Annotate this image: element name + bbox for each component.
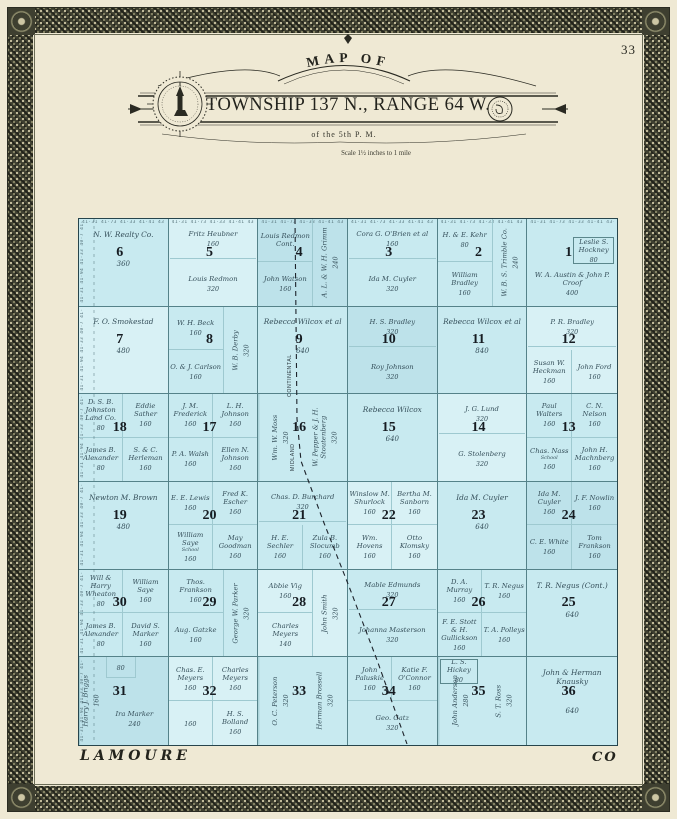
parcel-acres: 320 — [242, 607, 250, 619]
section-cell: Winslow M. Shurlock160Bertha M. Sanborn1… — [348, 482, 438, 570]
parcel-owner: Newton M. Brown — [89, 493, 157, 502]
section-cell: T. R. Negus (Cont.)64025 — [527, 570, 617, 658]
parcel-acres: 160 — [543, 377, 555, 385]
parcel-acres: 160 — [93, 695, 101, 707]
parcel: O. & J. Carlson160 — [169, 350, 224, 393]
section-cell: 41·31 41·94 41·33 40·7 41·7Will & Harry … — [79, 570, 169, 658]
parcel: John Watson160 — [258, 262, 313, 305]
parcel: Charles Meyers140 — [258, 613, 313, 656]
parcel-owner: Charles Meyers — [259, 622, 311, 638]
parcel-acres: 160 — [588, 552, 600, 560]
parcel: Louis Redmon Cont. — [258, 219, 313, 262]
parcel-acres: 160 — [139, 640, 151, 648]
parcel-acres: 160 — [229, 464, 241, 472]
parcel-owner: Otto Klomsky — [393, 534, 435, 550]
parcel-owner: W. B. S. Trimble Co. — [500, 228, 508, 297]
section-cell: P. R. Bradley320Susan W. Heckman160John … — [527, 307, 617, 395]
parcel-acres: 640 — [565, 611, 578, 619]
parcel: P. A. Walsh160 — [169, 438, 213, 481]
parcel: Rebecca Wilcox et al840 — [439, 308, 526, 393]
parcel: John Smith320 — [313, 570, 347, 657]
section-number: 31 — [113, 684, 127, 700]
section-number: 23 — [471, 508, 485, 524]
meridian-note: of the 5th P. M. — [206, 130, 482, 139]
section-number: 7 — [116, 332, 123, 348]
section-cell: 41·31 41·94 41·33 40·7 41·7F. O. Smokest… — [79, 307, 169, 395]
border-rosette — [8, 784, 35, 811]
parcel-owner: A. L. & W. H. Grimm — [321, 227, 329, 297]
parcel-acres: 160 — [279, 592, 291, 600]
parcel-owner: Wm. W. Moss — [271, 415, 279, 461]
section-cell: Wm. W. Moss320W. Pepper & J. H. Stoutenb… — [258, 394, 348, 482]
parcel: T. R. Negus160 — [482, 570, 526, 613]
parcel-owner: Chas. D. Burchard — [271, 493, 334, 501]
parcel-acres: 160 — [274, 552, 286, 560]
parcel-acres: 320 — [386, 373, 398, 381]
parcel-owner: Katie F. O'Connor — [393, 666, 435, 682]
section-cell: D. A. Murray160T. R. Negus160F. E. Stott… — [438, 570, 528, 658]
parcel: William Saye160 — [123, 570, 167, 613]
parcel-owner: Ida M. Cuyler — [369, 275, 416, 283]
parcel-owner: Rebecca Wilcox et al — [443, 317, 521, 326]
parcel-owner: Thos. Frankson — [170, 578, 222, 594]
parcel: Ellen N. Johnson160 — [213, 438, 257, 481]
section-number: 15 — [382, 420, 396, 436]
parcel-owner: D. A. Murray — [439, 578, 480, 594]
parcel-owner: W. Pepper & J. H. Stoutenberg — [311, 395, 327, 480]
section-number: 3 — [385, 245, 392, 261]
parcel-owner: W. B. Derby — [231, 330, 239, 370]
section-cell: W. H. Beck160O. & J. Carlson160W. B. Der… — [169, 307, 259, 395]
parcel: David S. Marker160 — [123, 613, 167, 656]
parcel-owner: Roy Johnson — [371, 363, 414, 371]
parcel-owner: S. T. Ross — [495, 685, 503, 718]
section-number: 29 — [202, 595, 216, 611]
section-number: 22 — [382, 508, 396, 524]
section-cell: 41·31 41·73 41·33 41·41 43·00 40·97 40·3… — [79, 219, 169, 307]
parcel-owner: E. E. Lewis — [171, 494, 210, 502]
parcel-owner: Zula B. Slocumb — [304, 534, 346, 550]
parcel-acres: 320 — [386, 636, 398, 644]
section-number: 11 — [472, 332, 485, 348]
section-cell: Chas. D. Burchard320H. E. Sechler160Zula… — [258, 482, 348, 570]
parcel-owner: C. N. Nelson — [573, 402, 616, 418]
parcel-owner: David S. Marker — [124, 622, 166, 638]
parcel-acres: 140 — [279, 640, 291, 648]
parcel-owner: H. S. Bradley — [369, 318, 415, 326]
parcel-acres: 160 — [588, 420, 600, 428]
parcel-owner: Harry J. Briggs — [82, 675, 90, 727]
parcel-acres: 320 — [326, 695, 334, 707]
parcel-owner: G. Stolenberg — [458, 450, 506, 458]
section-cell: Paul Walters160C. N. Nelson160Chas. Nass… — [527, 394, 617, 482]
section-number: 26 — [471, 595, 485, 611]
parcel-acres: 160 — [139, 596, 151, 604]
parcel-owner: John Anderson — [451, 676, 459, 727]
parcel: S. & C. Herleman160 — [123, 438, 167, 481]
parcel-owner: Rebecca Wilcox — [363, 405, 422, 414]
parcel: W. Pepper & J. H. Stoutenberg320 — [303, 394, 347, 481]
section-cell: H. S. Bradley320Roy Johnson32010 — [348, 307, 438, 395]
parcel-acres: 320 — [506, 695, 514, 707]
map-title-block: MAP OF TOWNSHIP 137 N., RANGE 64 W. of t… — [128, 34, 568, 164]
parcel-acres: 160 — [139, 420, 151, 428]
parcel-acres: 640 — [386, 435, 399, 443]
parcel-acres: 640 — [565, 707, 578, 715]
parcel-acres: 160 — [364, 684, 376, 692]
parcel-acres: 160 — [408, 684, 420, 692]
section-cell: Chas. E. Meyers160Charles Meyers160160H.… — [169, 657, 259, 745]
section-number: 25 — [562, 595, 576, 611]
parcel: G. Stolenberg320 — [439, 438, 526, 480]
parcel-owner: Johanna Masterson — [359, 626, 426, 634]
section-number: 9 — [296, 332, 303, 348]
section-number: 5 — [206, 245, 213, 261]
parcel-owner: James B. Alexander — [80, 446, 121, 462]
parcel-acres: 320 — [242, 344, 250, 356]
parcel-owner: John Paluskie — [349, 666, 390, 682]
parcel-owner: Charles Meyers — [214, 666, 256, 682]
county-label-co: CO — [592, 750, 618, 765]
emblem-vignette-icon — [147, 71, 213, 137]
parcel: W. A. Austin & John P. Croof400 — [528, 263, 616, 305]
parcel-owner: J. G. Lund — [465, 405, 499, 413]
parcel: Eddie Sather160 — [123, 394, 167, 437]
parcel: Fritz Heubner160 — [170, 220, 257, 259]
section-number: 33 — [292, 684, 306, 700]
parcel-acres: 160 — [319, 552, 331, 560]
parcel-acres: 160 — [459, 289, 471, 297]
parcel: Ira Marker240 — [102, 694, 167, 743]
parcel-owner: J. F. Nowlin — [575, 494, 614, 502]
parcel-acres: 240 — [332, 256, 340, 268]
parcel-owner: John Ford — [578, 363, 612, 371]
parcel-owner: Leslie S. Hockney — [575, 238, 612, 254]
section-cell: Rebecca Wilcox64015 — [348, 394, 438, 482]
section-number: 8 — [206, 332, 213, 348]
parcel-acres: 160 — [229, 684, 241, 692]
section-number: 18 — [113, 420, 127, 436]
section-number: 36 — [562, 684, 576, 700]
parcel-owner: T. A. Polleys — [484, 626, 525, 634]
parcel-owner: George W. Parker — [231, 583, 239, 643]
parcel-owner: May Goodman — [214, 534, 256, 550]
parcel: Tom Frankson160 — [572, 525, 617, 568]
parcel: C. E. White160 — [527, 525, 572, 568]
parcel-acres: 240 — [128, 720, 140, 728]
parcel: May Goodman160 — [213, 525, 257, 568]
section-number: 19 — [113, 508, 127, 524]
parcel: N. W. Realty Co.360 — [80, 220, 167, 305]
scale-note: Scale 1½ inches to 1 mile — [238, 150, 514, 157]
parcel-acres: 160 — [190, 596, 202, 604]
parcel: James B. Alexander80 — [79, 613, 123, 656]
decorative-border-bottom — [8, 786, 669, 811]
parcel-acres: 80 — [97, 464, 105, 472]
parcel: C. N. Nelson160 — [572, 394, 617, 437]
parcel-owner: F. O. Smokestad — [93, 317, 153, 326]
county-label-lamoure: LAMOURE — [80, 748, 191, 764]
section-number: 14 — [471, 420, 485, 436]
parcel-acres: 480 — [117, 347, 130, 355]
parcel: Wm. W. Moss320 — [258, 394, 302, 481]
parcel-owner: L. H. Johnson — [214, 402, 256, 418]
survey-lot-numbers: 41·31 41·73 41·33 41·41 43·00 40·97 40·3… — [530, 220, 614, 225]
section-number: 20 — [202, 508, 216, 524]
parcel: Otto Klomsky160 — [392, 525, 436, 568]
parcel-owner: Paul Walters — [528, 402, 570, 418]
parcel: John Anderson280 — [438, 657, 482, 745]
decorative-border-top — [8, 8, 669, 33]
section-cell: Rebecca Wilcox et al6409 — [258, 307, 348, 395]
banner-end-ornament-icon — [488, 97, 512, 121]
parcel-acres: 240 — [511, 256, 519, 268]
section-cell: 41·31 41·94 41·33 40·7 41·7Newton M. Bro… — [79, 482, 169, 570]
parcel: 160 — [169, 701, 213, 745]
section-cell: John Paluskie160Katie F. O'Connor160Geo.… — [348, 657, 438, 745]
parcel: George W. Parker320 — [224, 570, 258, 657]
border-rosette — [642, 784, 669, 811]
section-number: 2 — [475, 245, 482, 261]
parcel: Bertha M. Sanborn160 — [392, 482, 436, 525]
parcel-owner: Wm. Hovens — [349, 534, 390, 550]
parcel-acres: 80 — [117, 664, 125, 672]
parcel-owner: W. H. Beck — [177, 319, 214, 327]
parcel-owner: Tom Frankson — [573, 534, 616, 550]
parcel-owner: W. A. Austin & John P. Croof — [529, 271, 615, 287]
section-number: 17 — [202, 420, 216, 436]
section-cell: 41·31 41·73 41·33 41·41 43·00 40·97 40·3… — [258, 219, 348, 307]
parcel-acres: 160 — [139, 464, 151, 472]
parcel-owner: Aug. Gatzke — [175, 626, 217, 634]
section-cell: Abbie Vig160Charles Meyers140John Smith3… — [258, 570, 348, 658]
parcel-owner: P. A. Walsh — [172, 450, 209, 458]
parcel-owner: John Smith — [321, 594, 329, 632]
parcel-acres: 160 — [543, 508, 555, 516]
parcel: J. F. Nowlin160 — [572, 482, 617, 525]
parcel: O. C. Peterson320 — [258, 657, 302, 745]
parcel: W. B. Derby320 — [224, 307, 258, 394]
section-cell: O. C. Peterson320Herman Brossell32033 — [258, 657, 348, 745]
parcel: Wm. Hovens160 — [348, 525, 392, 568]
decorative-border-left — [8, 8, 33, 811]
parcel-acres: 160 — [229, 552, 241, 560]
parcel: 80 — [106, 657, 136, 678]
parcel-owner: Fred K. Escher — [214, 490, 256, 506]
parcel-acres: 80 — [97, 640, 105, 648]
parcel-acres: 160 — [498, 592, 510, 600]
parcel-acres: 160 — [190, 636, 202, 644]
parcel-owner: John Watson — [264, 275, 307, 283]
section-cell: 41·31 41·73 41·33 41·41 43·00 40·97 40·3… — [527, 219, 617, 307]
parcel-owner: O. & J. Carlson — [170, 363, 221, 371]
section-number: 1 — [565, 245, 572, 261]
section-cell: E. E. Lewis160Fred K. Escher160William S… — [169, 482, 259, 570]
section-cell: John & Herman Knausky64036 — [527, 657, 617, 745]
parcel-acres: 160 — [184, 684, 196, 692]
parcel-owner: Fritz Heubner — [189, 230, 238, 238]
parcel-acres: 160 — [184, 460, 196, 468]
parcel: Susan W. Heckman160 — [527, 350, 572, 393]
parcel-owner: Will & Harry Wheaton — [80, 574, 121, 598]
section-number: 13 — [562, 420, 576, 436]
parcel-owner: H. S. Bolland — [214, 710, 256, 726]
border-rosette — [8, 8, 35, 35]
parcel-acres: 640 — [296, 347, 309, 355]
parcel-acres: 160 — [543, 548, 555, 556]
parcel-acres: 160 — [453, 596, 465, 604]
section-number: 4 — [296, 245, 303, 261]
parcel-owner: T. R. Negus — [484, 582, 523, 590]
parcel-owner: N. W. Realty Co. — [93, 230, 153, 239]
parcel-owner: Ida M. Cuyler — [456, 493, 508, 502]
parcel: T. A. Polleys160 — [482, 613, 526, 656]
parcel-acres: 160 — [229, 508, 241, 516]
section-number: 34 — [382, 684, 396, 700]
parcel: Ida M. Cuyler320 — [349, 263, 436, 305]
map-title: TOWNSHIP 137 N., RANGE 64 W. — [206, 95, 482, 116]
section-cell: Thos. Frankson160Aug. Gatzke160George W.… — [169, 570, 259, 658]
parcel: William SayeSchool160 — [169, 525, 213, 568]
section-cell: Mable Edmunds320Johanna Masterson32027 — [348, 570, 438, 658]
parcel: H. S. Bolland160 — [213, 701, 257, 745]
parcel-acres: 160 — [364, 508, 376, 516]
parcel: Fred K. Escher160 — [213, 482, 257, 525]
parcel: James B. Alexander80 — [79, 438, 123, 481]
section-number: 35 — [471, 684, 485, 700]
parcel: Aug. Gatzke160 — [169, 613, 224, 656]
parcel-acres: 360 — [117, 260, 130, 268]
parcel: John H. Machnberg160 — [572, 438, 617, 481]
section-cell: 41·31 41·94 41·33 40·7 41·7Harry J. Brig… — [79, 657, 169, 745]
page-number: 33 — [621, 42, 636, 58]
section-number: 28 — [292, 595, 306, 611]
map-of-arc-text: MAP OF — [305, 50, 391, 70]
parcel-owner: T. R. Negus (Cont.) — [537, 581, 608, 590]
parcel-acres: 320 — [386, 285, 398, 293]
parcel-acres: 160 — [543, 420, 555, 428]
parcel-owner: F. E. Stott & H. Gullickson — [439, 618, 480, 642]
parcel: Chas. NassSchool160 — [527, 438, 572, 481]
parcel-owner: Cora G. O'Brien et al — [356, 230, 428, 238]
parcel: Herman Brossell320 — [303, 657, 347, 745]
parcel-acres: 320 — [332, 607, 340, 619]
parcel: Zula B. Slocumb160 — [303, 525, 347, 568]
parcel-owner: Rebecca Wilcox et al — [264, 317, 342, 326]
parcel-acres: 160 — [229, 420, 241, 428]
parcel-owner: Ira Marker — [116, 710, 154, 718]
school-label: School — [541, 455, 558, 461]
parcel-acres: 280 — [462, 695, 470, 707]
parcel-owner: Mable Edmunds — [364, 581, 420, 589]
section-cell: 41·31 41·94 41·33 40·7 41·7D. S. B. John… — [79, 394, 169, 482]
section-number: 27 — [382, 595, 396, 611]
section-cell: Rebecca Wilcox et al84011 — [438, 307, 528, 395]
parcel-owner: Louis Redmon — [188, 275, 237, 283]
parcel: W. H. Beck160 — [169, 307, 224, 350]
parcel: Cora G. O'Brien et al160 — [349, 220, 436, 259]
parcel: L. H. Johnson160 — [213, 394, 257, 437]
section-cell: J. M. Frederick160L. H. Johnson160P. A. … — [169, 394, 259, 482]
parcel-owner: P. R. Bradley — [550, 318, 594, 326]
parcel: F. O. Smokestad480 — [80, 308, 167, 393]
parcel-acres: 160 — [279, 285, 291, 293]
parcel-owner: Susan W. Heckman — [528, 359, 570, 375]
section-number: 21 — [292, 508, 306, 524]
parcel-acres: 320 — [386, 724, 398, 732]
section-cell: 41·31 41·73 41·33 41·41 43·00 40·97 40·3… — [348, 219, 438, 307]
parcel-owner: Ida M. Cuyler — [528, 490, 570, 506]
section-grid: 41·31 41·73 41·33 41·41 43·00 40·97 40·3… — [79, 219, 617, 745]
atlas-page: 33 — [0, 0, 677, 819]
parcel-acres: 160 — [498, 636, 510, 644]
section-cell: 41·31 41·73 41·33 41·41 43·00 40·97 40·3… — [169, 219, 259, 307]
parcel-acres: 320 — [476, 460, 488, 468]
section-number: 16 — [292, 420, 306, 436]
parcel-owner: Ellen N. Johnson — [214, 446, 256, 462]
parcel-acres: 80 — [97, 424, 105, 432]
section-cell: 41·31 41·73 41·33 41·41 43·00 40·97 40·3… — [438, 219, 528, 307]
parcel: Ida M. Cuyler640 — [439, 483, 526, 568]
parcel-owner: H. E. Sechler — [259, 534, 300, 550]
parcel-acres: 160 — [453, 644, 465, 652]
parcel-owner: Louis Redmon Cont. — [259, 232, 311, 248]
parcel-owner: S. & C. Herleman — [124, 446, 166, 462]
parcel-acres: 480 — [117, 523, 130, 531]
parcel-owner: Chas. E. Meyers — [170, 666, 211, 682]
section-cell: Ida M. Cuyler64023 — [438, 482, 528, 570]
parcel-acres: 160 — [184, 555, 196, 563]
parcel-acres: 160 — [543, 463, 555, 471]
parcel: Rebecca Wilcox640 — [349, 395, 436, 480]
parcel: H. E. Sechler160 — [258, 525, 302, 568]
parcel: A. L. & W. H. Grimm240 — [313, 219, 347, 306]
section-number: 32 — [202, 684, 216, 700]
section-cell: J. G. Lund320G. Stolenberg32014 — [438, 394, 528, 482]
parcel-owner: William Bradley — [439, 271, 491, 287]
parcel-owner: James B. Alexander — [80, 622, 121, 638]
parcel-owner: Abbie Vig — [269, 582, 302, 590]
township-map: 41·31 41·73 41·33 41·41 43·00 40·97 40·3… — [78, 218, 618, 746]
parcel: F. E. Stott & H. Gullickson160 — [438, 613, 482, 656]
parcel: John & Herman Knausky640 — [528, 658, 616, 744]
section-number: 6 — [116, 245, 123, 261]
parcel: Johanna Masterson320 — [349, 614, 436, 656]
parcel-owner: J. M. Frederick — [170, 402, 211, 418]
parcel-owner: H. & E. Kehr — [442, 231, 486, 239]
parcel: Katie F. O'Connor160 — [392, 657, 436, 701]
parcel-acres: 160 — [184, 504, 196, 512]
parcel-owner: John H. Machnberg — [573, 446, 616, 462]
parcel: S. T. Ross320 — [482, 657, 526, 745]
parcel-owner: William Saye — [124, 578, 166, 594]
svg-text:MAP OF: MAP OF — [305, 50, 391, 70]
section-number: 10 — [382, 332, 396, 348]
decorative-border-right — [644, 8, 669, 811]
parcel-acres: 160 — [229, 728, 241, 736]
parcel-acres: 640 — [475, 523, 488, 531]
section-cell: Ida M. Cuyler160J. F. Nowlin160C. E. Whi… — [527, 482, 617, 570]
section-number: 24 — [562, 508, 576, 524]
parcel-acres: 160 — [408, 552, 420, 560]
parcel-acres: 320 — [282, 432, 290, 444]
parcel-acres: 840 — [475, 347, 488, 355]
parcel: Roy Johnson320 — [349, 351, 436, 393]
parcel-acres: 160 — [190, 373, 202, 381]
section-cell: L. S. Hickey80John Anderson280S. T. Ross… — [438, 657, 528, 745]
parcel-owner: O. C. Peterson — [271, 677, 279, 726]
parcel-acres: 160 — [184, 420, 196, 428]
